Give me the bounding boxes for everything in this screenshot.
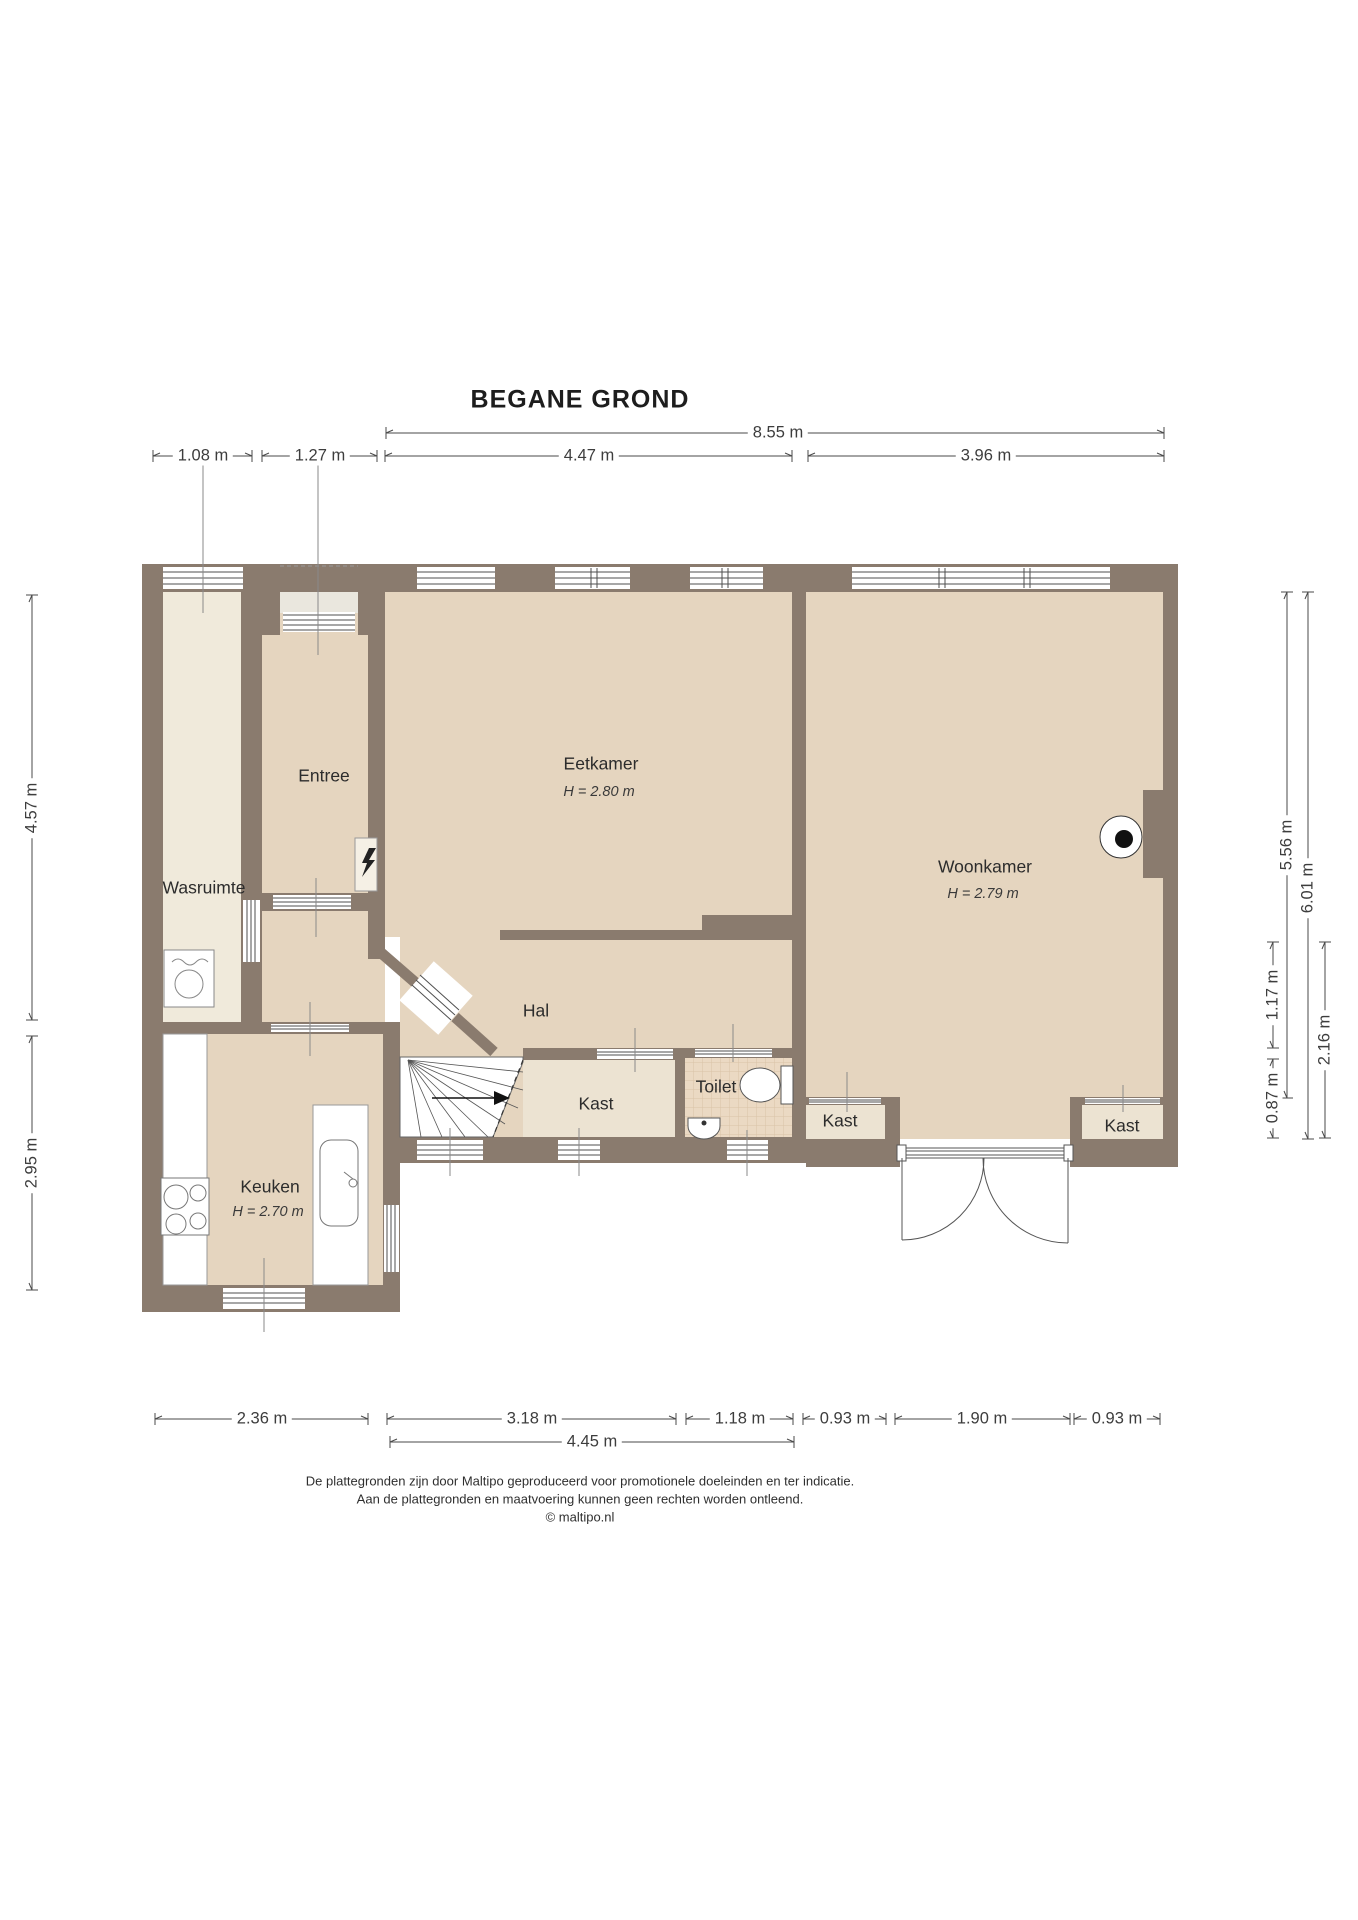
floorplan-page: BEGANE GROND WasruimteEntreeEetkamerH = … <box>0 0 1358 1920</box>
dimension-216m-11 <box>1319 942 1331 1138</box>
dimension-118m-14 <box>686 1413 793 1425</box>
wall-kast-right-west <box>1070 1097 1082 1139</box>
wall-chimney-protrusion <box>1143 790 1163 878</box>
wall-divider <box>792 592 806 1163</box>
dimension-093m-15 <box>803 1413 886 1425</box>
dimension-093m-17 <box>1074 1413 1160 1425</box>
wall-kast-mid-east <box>885 1097 900 1139</box>
counter-left <box>163 1034 207 1285</box>
dimension-127m-2 <box>262 450 377 462</box>
wall-woonkamer-south-left <box>806 1139 900 1167</box>
wall-right <box>1163 564 1178 1167</box>
wall-light-icon <box>1100 816 1142 858</box>
dimension-855m-0 <box>386 427 1164 439</box>
door-swing-left <box>902 1158 984 1240</box>
dimension-318m-13 <box>387 1413 676 1425</box>
front-door-threshold <box>283 612 355 632</box>
wall-left <box>142 564 163 1312</box>
door-wasruimte <box>243 900 260 962</box>
toilet-sink-icon <box>688 1118 720 1139</box>
wall-eetkamer-south-b <box>500 930 702 940</box>
door-entree-hal <box>273 895 351 909</box>
dimension-117m-9 <box>1267 942 1279 1048</box>
window-woonkamer <box>852 567 1110 589</box>
dimension-447m-3 <box>385 450 792 462</box>
french-doors <box>897 1139 1073 1243</box>
dimension-556m-7 <box>1281 592 1293 1098</box>
floor-kast-mid <box>806 1105 885 1139</box>
door-swing-right <box>983 1158 1068 1243</box>
dimension-236m-12 <box>155 1413 368 1425</box>
dimension-295m-6 <box>26 1036 38 1290</box>
dimension-190m-16 <box>895 1413 1070 1425</box>
window-eetkamer-3 <box>690 567 763 589</box>
window-eetkamer-2 <box>555 567 630 589</box>
floor-kast-stairs <box>523 1060 675 1137</box>
dimension-445m-18 <box>390 1436 794 1448</box>
floor-entree <box>262 612 370 911</box>
wall-woonkamer-south-right <box>1070 1139 1178 1167</box>
door-kast-mid <box>809 1098 881 1104</box>
electric-meter-icon <box>355 838 377 891</box>
dimension-396m-4 <box>808 450 1164 462</box>
toilet-bowl-icon <box>740 1066 793 1104</box>
wall-eetkamer-south-a <box>702 915 792 940</box>
kitchen-sink-icon <box>320 1140 358 1226</box>
floorplan-drawing <box>0 0 1358 1920</box>
washing-machine-icon <box>164 950 214 1007</box>
stove-icon <box>161 1178 209 1235</box>
dimension-457m-5 <box>26 595 38 1020</box>
window-keuken-east <box>384 1205 399 1272</box>
floor-woonkamer <box>806 592 1163 1139</box>
dimension-601m-8 <box>1302 592 1314 1139</box>
wall-toilet-west <box>675 1048 685 1140</box>
dimension-087m-10 <box>1267 1059 1279 1138</box>
floor-eetkamer <box>385 592 792 937</box>
window-eetkamer-1 <box>417 567 495 589</box>
wall-porch-left <box>243 564 280 635</box>
floor-corridor <box>262 893 385 1034</box>
